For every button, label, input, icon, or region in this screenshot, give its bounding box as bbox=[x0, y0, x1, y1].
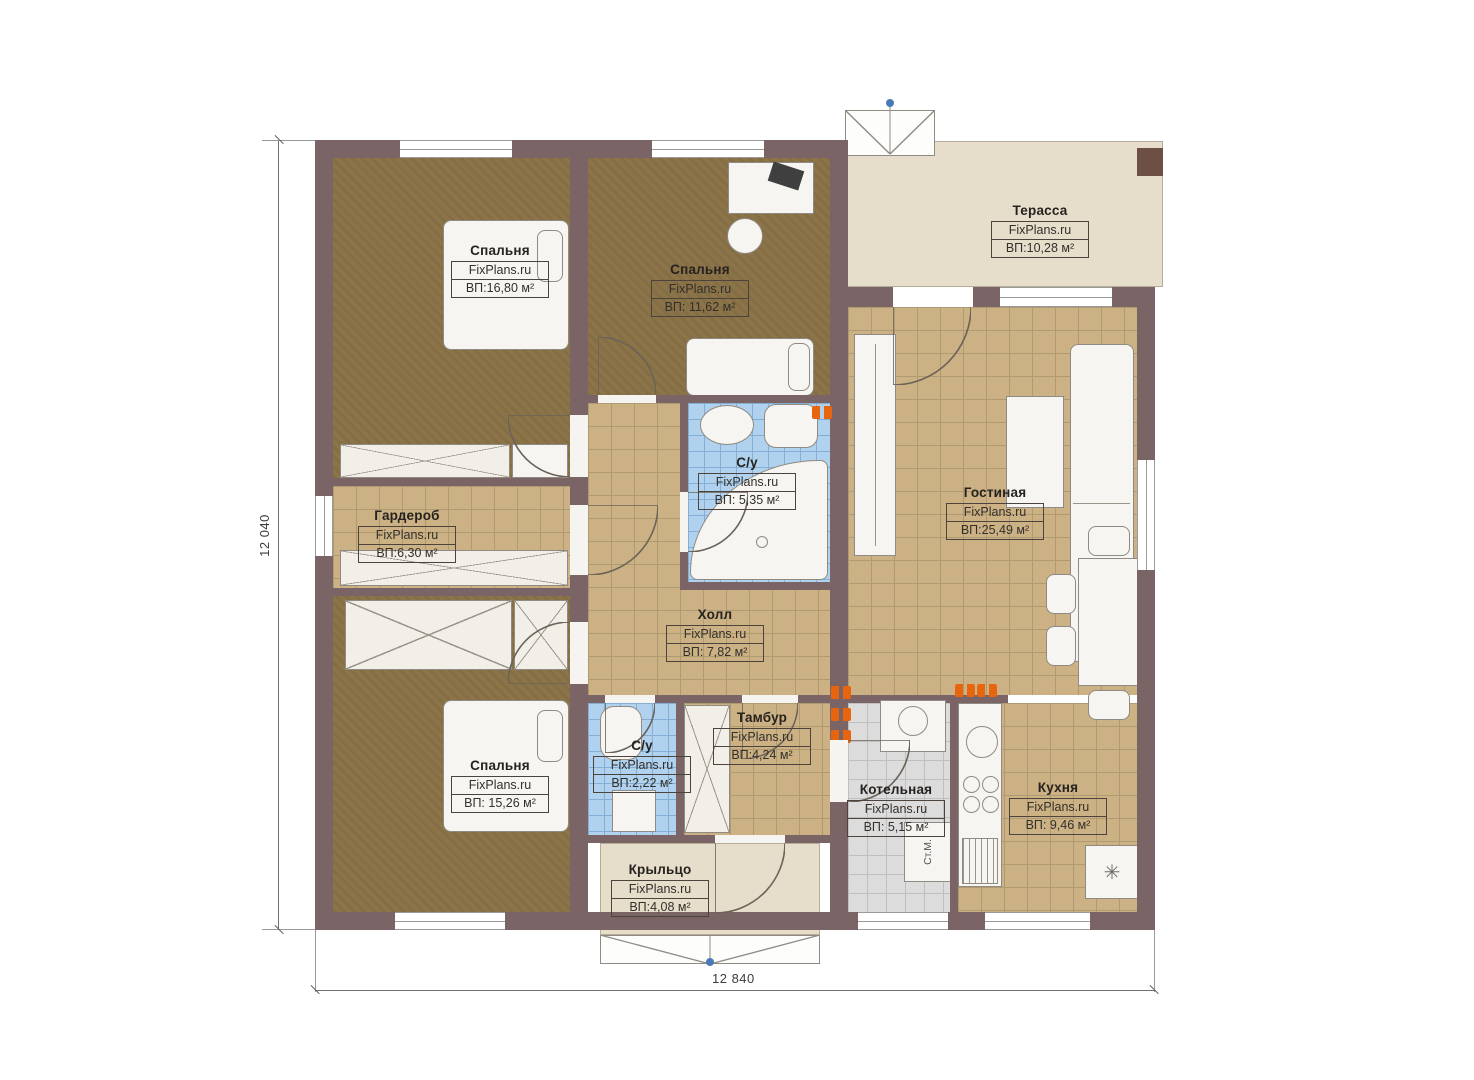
stove-burner bbox=[963, 776, 980, 793]
room-label-bathroom-small: С/у FixPlans.ru ВП:2,22 м² bbox=[593, 738, 691, 793]
radiator-icon bbox=[955, 684, 975, 697]
room-label-porch: Крыльцо FixPlans.ru ВП:4,08 м² bbox=[611, 862, 709, 917]
room-area: ВП: 9,46 м² bbox=[1009, 817, 1107, 835]
brand-watermark: FixPlans.ru bbox=[713, 728, 811, 747]
wall bbox=[333, 588, 570, 596]
brand-watermark: FixPlans.ru bbox=[991, 221, 1089, 240]
room-label-boiler: Котельная FixPlans.ru ВП: 5,15 м² bbox=[847, 782, 945, 837]
stove-burner bbox=[982, 796, 999, 813]
bathtub-drain bbox=[756, 536, 768, 548]
wall bbox=[680, 582, 838, 590]
door-opening bbox=[570, 505, 588, 575]
radiator-icon bbox=[831, 708, 851, 721]
room-name: Холл bbox=[666, 607, 764, 622]
room-area: ВП:10,28 м² bbox=[991, 240, 1089, 258]
room-label-hall: Холл FixPlans.ru ВП: 7,82 м² bbox=[666, 607, 764, 662]
chair bbox=[1046, 574, 1076, 614]
terrace-stairs bbox=[845, 98, 935, 156]
fridge-symbol: ✳ bbox=[1086, 846, 1138, 898]
extension-line bbox=[315, 930, 316, 992]
wall bbox=[1137, 287, 1155, 930]
porch-stairs bbox=[600, 935, 820, 967]
room-label-tambur: Тамбур FixPlans.ru ВП:4,24 м² bbox=[713, 710, 811, 765]
room-name: Крыльцо bbox=[611, 862, 709, 877]
door-arc bbox=[508, 622, 570, 684]
extension-line bbox=[1154, 930, 1155, 992]
room-area: ВП:16,80 м² bbox=[451, 280, 549, 298]
room-area: ВП:2,22 м² bbox=[593, 775, 691, 793]
pillow bbox=[788, 343, 810, 391]
brand-watermark: FixPlans.ru bbox=[847, 800, 945, 819]
stove-burner bbox=[982, 776, 999, 793]
door-opening bbox=[570, 622, 588, 684]
dimension-value-bottom: 12 840 bbox=[712, 971, 755, 986]
window bbox=[315, 496, 333, 556]
room-label-bedroom-top-left: Спальня FixPlans.ru ВП:16,80 м² bbox=[451, 243, 549, 298]
window bbox=[395, 912, 505, 930]
window bbox=[1000, 287, 1112, 307]
radiator-icon bbox=[831, 686, 851, 699]
room-name: Котельная bbox=[847, 782, 945, 797]
stove-burner bbox=[963, 796, 980, 813]
dimension-line-bottom bbox=[315, 990, 1155, 991]
pillow bbox=[537, 710, 563, 762]
room-area: ВП:4,24 м² bbox=[713, 747, 811, 765]
door-opening bbox=[893, 287, 973, 307]
door-opening bbox=[715, 835, 785, 843]
door-opening bbox=[742, 695, 798, 703]
room-area: ВП:25,49 м² bbox=[946, 522, 1044, 540]
toilet bbox=[764, 404, 818, 448]
room-label-kitchen: Кухня FixPlans.ru ВП: 9,46 м² bbox=[1009, 780, 1107, 835]
wall bbox=[588, 835, 830, 843]
tv-stand bbox=[854, 334, 896, 556]
window bbox=[985, 912, 1090, 930]
window bbox=[652, 140, 764, 158]
room-label-wardrobe: Гардероб FixPlans.ru ВП:6,30 м² bbox=[358, 508, 456, 563]
radiator-icon bbox=[977, 684, 997, 697]
door-arc bbox=[588, 505, 658, 575]
brand-watermark: FixPlans.ru bbox=[611, 880, 709, 899]
terrace-column bbox=[1137, 148, 1163, 176]
door-opening bbox=[570, 415, 588, 477]
brand-watermark: FixPlans.ru bbox=[593, 756, 691, 775]
dining-table bbox=[1078, 558, 1138, 686]
chair bbox=[727, 218, 763, 254]
floor-plan: ✳ Ст.М. bbox=[0, 0, 1474, 1080]
room-name: Спальня bbox=[651, 262, 749, 277]
door-arc bbox=[893, 307, 971, 385]
room-name: С/у bbox=[593, 738, 691, 753]
brand-watermark: FixPlans.ru bbox=[451, 776, 549, 795]
fridge: ✳ bbox=[1085, 845, 1139, 899]
kitchen-sink bbox=[966, 726, 998, 758]
room-name: Гардероб bbox=[358, 508, 456, 523]
wardrobe-cabinet bbox=[340, 444, 510, 478]
door-opening bbox=[680, 492, 688, 552]
washbasin-cabinet bbox=[612, 790, 656, 832]
door-opening bbox=[830, 740, 848, 802]
wall bbox=[333, 478, 570, 486]
room-name: Терасса bbox=[991, 203, 1089, 218]
chair bbox=[1088, 690, 1130, 720]
window bbox=[400, 140, 512, 158]
room-label-bedroom-bottom: Спальня FixPlans.ru ВП: 15,26 м² bbox=[451, 758, 549, 813]
wall bbox=[315, 140, 848, 158]
door-opening bbox=[605, 695, 655, 703]
brand-watermark: FixPlans.ru bbox=[451, 261, 549, 280]
door-arc bbox=[598, 337, 656, 395]
room-label-living: Гостиная FixPlans.ru ВП:25,49 м² bbox=[946, 485, 1044, 540]
room-area: ВП: 15,26 м² bbox=[451, 795, 549, 813]
brand-watermark: FixPlans.ru bbox=[358, 526, 456, 545]
door-arc bbox=[508, 415, 570, 477]
brand-watermark: FixPlans.ru bbox=[651, 280, 749, 299]
sink bbox=[700, 405, 754, 445]
room-name: Спальня bbox=[451, 758, 549, 773]
room-name: Кухня bbox=[1009, 780, 1107, 795]
room-name: Гостиная bbox=[946, 485, 1044, 500]
radiator-icon bbox=[812, 406, 832, 419]
door-opening bbox=[598, 395, 656, 403]
brand-watermark: FixPlans.ru bbox=[946, 503, 1044, 522]
wall bbox=[950, 703, 958, 912]
room-label-bathroom-main: С/у FixPlans.ru ВП: 5,35 м² bbox=[698, 455, 796, 510]
room-label-bedroom-mid: Спальня FixPlans.ru ВП: 11,62 м² bbox=[651, 262, 749, 317]
wardrobe-cabinet bbox=[345, 600, 512, 670]
room-name: С/у bbox=[698, 455, 796, 470]
brand-watermark: FixPlans.ru bbox=[1009, 798, 1107, 817]
dish-rack bbox=[962, 838, 998, 884]
window bbox=[1137, 460, 1155, 570]
room-area: ВП:6,30 м² bbox=[358, 545, 456, 563]
chair bbox=[1046, 626, 1076, 666]
door-arc bbox=[715, 843, 785, 913]
room-area: ВП:4,08 м² bbox=[611, 899, 709, 917]
room-area: ВП: 7,82 м² bbox=[666, 644, 764, 662]
brand-watermark: FixPlans.ru bbox=[666, 625, 764, 644]
room-area: ВП: 5,35 м² bbox=[698, 492, 796, 510]
room-label-terrace: Терасса FixPlans.ru ВП:10,28 м² bbox=[991, 203, 1089, 258]
dimension-value-left: 12 040 bbox=[257, 514, 272, 557]
chair bbox=[1088, 526, 1130, 556]
room-area: ВП: 11,62 м² bbox=[651, 299, 749, 317]
room-area: ВП: 5,15 м² bbox=[847, 819, 945, 837]
window bbox=[858, 912, 948, 930]
extension-line bbox=[262, 140, 315, 141]
dimension-line-left bbox=[278, 140, 279, 930]
extension-line bbox=[262, 929, 315, 930]
boiler-dial bbox=[898, 706, 928, 736]
room-name: Спальня bbox=[451, 243, 549, 258]
brand-watermark: FixPlans.ru bbox=[698, 473, 796, 492]
room-name: Тамбур bbox=[713, 710, 811, 725]
